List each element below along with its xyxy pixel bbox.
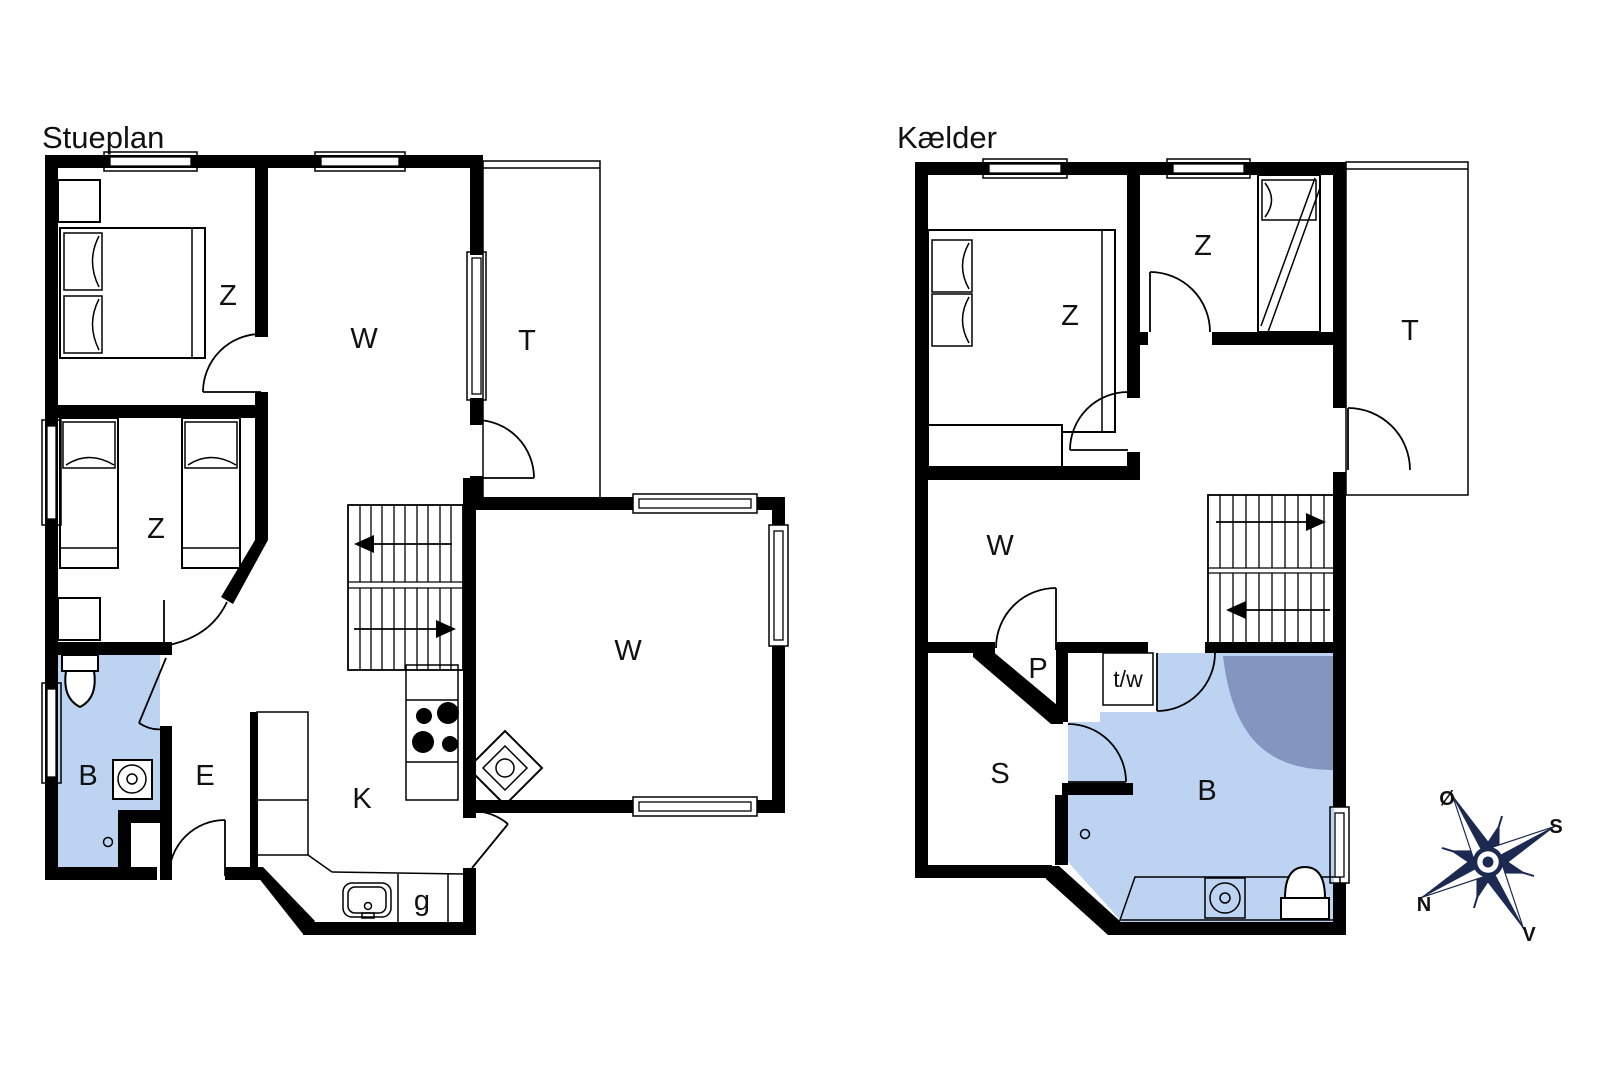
room-label-bedroom2: Z: [147, 513, 165, 545]
stove-icon: [412, 702, 459, 753]
room-label-bathroom: B: [1197, 775, 1216, 807]
bunk-bed-icon: [1258, 175, 1320, 332]
compass-east-label: Ø: [1439, 788, 1455, 810]
single-bed-icon: [182, 418, 240, 568]
room-label-living: W: [986, 530, 1014, 562]
room-label-bedroom2: Z: [1194, 230, 1212, 262]
stair-steps: [348, 505, 463, 670]
kitchen-sink-icon: [343, 883, 391, 918]
room-label-bathroom: B: [78, 760, 97, 792]
window-icon: [983, 159, 1067, 178]
room-label-terrace: T: [518, 325, 536, 357]
room-label-storage: S: [990, 758, 1009, 790]
room-label-hall: P: [1028, 653, 1047, 685]
room-label-bedroom1: Z: [1061, 300, 1079, 332]
cabinet-icon: [58, 598, 100, 640]
window-icon: [315, 152, 405, 171]
room-label-living-lower: W: [614, 635, 642, 667]
wardrobe-icon: [58, 180, 100, 222]
room-label-bedroom1: Z: [219, 280, 237, 312]
room-label-entrance: E: [195, 760, 214, 792]
compass-north-label: N: [1417, 894, 1431, 916]
window-icon: [633, 494, 757, 513]
kaelder-stairs: [1208, 495, 1337, 645]
room-label-living-upper: W: [350, 323, 378, 355]
window-icon: [769, 525, 788, 646]
bathroom-sink-icon: [113, 760, 152, 799]
plan-title-stueplan: Stueplan: [42, 120, 164, 155]
compass-west-label: V: [1522, 924, 1536, 946]
plan-title-kaelder: Kælder: [897, 120, 997, 155]
compass-rose: Ø S N V: [1385, 759, 1591, 965]
stueplan-plan: Stueplan: [42, 120, 788, 935]
single-bed-icon: [60, 418, 118, 568]
wood-stove-icon: [468, 731, 542, 805]
double-bed-icon: [928, 230, 1115, 432]
kaelder-plan: Kælder: [897, 120, 1468, 935]
door-swing-icon: [476, 420, 534, 478]
sideboard-icon: [928, 425, 1062, 470]
floorplan-canvas: Stueplan: [0, 0, 1600, 1067]
compass-star: [1385, 759, 1591, 965]
window-icon: [42, 420, 61, 525]
door-swing-icon: [1348, 408, 1410, 470]
terrace-outline: [483, 161, 600, 503]
door-swing-icon: [169, 820, 225, 876]
floorplan-page: Stueplan: [0, 0, 1600, 1067]
room-label-terrace: T: [1401, 315, 1419, 347]
door-swing-icon: [164, 600, 227, 646]
window-icon: [633, 797, 757, 816]
door-swing-icon: [472, 811, 508, 868]
double-bed-icon: [60, 228, 205, 358]
compass-south-label: S: [1549, 816, 1562, 838]
door-swing-icon: [996, 588, 1056, 650]
room-label-utility: g: [414, 885, 430, 917]
stueplan-stairs: [348, 505, 463, 670]
room-label-laundry: t/w: [1113, 666, 1143, 692]
door-swing-icon: [203, 334, 261, 392]
window-icon: [1167, 159, 1250, 178]
stair-steps: [1208, 495, 1337, 645]
room-label-kitchen: K: [352, 783, 372, 815]
door-swing-icon: [1150, 272, 1210, 332]
